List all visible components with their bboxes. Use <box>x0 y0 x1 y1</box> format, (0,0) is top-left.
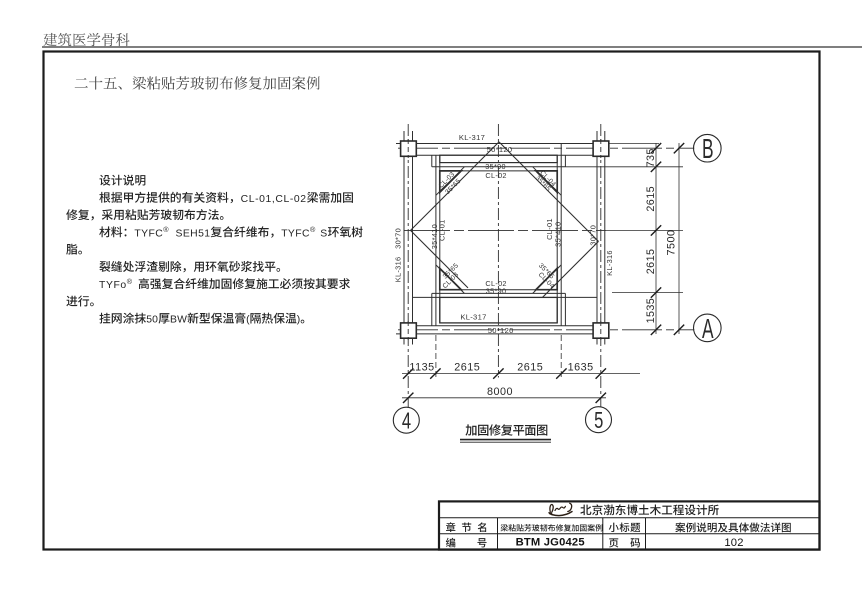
svg-text:CL-01: CL-01 <box>438 219 447 241</box>
svg-text:35*90: 35*90 <box>485 162 506 171</box>
svg-text:S: S <box>320 228 327 239</box>
svg-text:2615: 2615 <box>645 186 657 212</box>
svg-text:2615: 2615 <box>645 249 657 275</box>
svg-text:102: 102 <box>724 537 743 549</box>
svg-text:KL-317: KL-317 <box>460 312 486 321</box>
svg-text:CL-02: CL-02 <box>485 171 506 180</box>
svg-text:BW: BW <box>170 315 187 326</box>
svg-text:50*120: 50*120 <box>487 145 513 154</box>
svg-text:30*70: 30*70 <box>394 228 403 249</box>
svg-text:35*90: 35*90 <box>486 287 507 296</box>
svg-text:®: ® <box>310 225 316 234</box>
svg-text:A: A <box>702 313 714 344</box>
svg-text:1635: 1635 <box>568 362 594 374</box>
svg-text:®: ® <box>127 277 133 286</box>
svg-text:8000: 8000 <box>487 386 513 398</box>
svg-text:(: ( <box>246 315 250 326</box>
svg-text:®: ® <box>163 225 169 234</box>
svg-text:5: 5 <box>594 408 603 433</box>
svg-text:B: B <box>702 133 714 164</box>
svg-text:2615: 2615 <box>454 362 480 374</box>
svg-text:SEH51: SEH51 <box>176 228 211 239</box>
svg-text:CL-01,CL-02: CL-01,CL-02 <box>241 194 307 205</box>
svg-text:TYFC: TYFC <box>134 228 163 239</box>
svg-text:TYFo: TYFo <box>99 280 127 291</box>
svg-text:7500: 7500 <box>665 229 677 255</box>
svg-text:35*410: 35*410 <box>554 222 563 247</box>
svg-text:1135: 1135 <box>409 362 434 374</box>
svg-text:1535: 1535 <box>645 298 657 324</box>
svg-text:4: 4 <box>402 409 411 434</box>
svg-text:BTM JG0425: BTM JG0425 <box>516 537 585 549</box>
svg-text:KL-316: KL-316 <box>394 257 403 283</box>
svg-text:735: 735 <box>645 148 657 167</box>
svg-text:2615: 2615 <box>517 362 543 374</box>
svg-text:KL-316: KL-316 <box>605 250 614 276</box>
svg-text:50*120: 50*120 <box>488 326 514 335</box>
svg-text:): ) <box>297 315 300 326</box>
svg-text:30*70: 30*70 <box>588 225 597 246</box>
svg-text:50: 50 <box>146 315 158 326</box>
svg-text:TYFC: TYFC <box>281 228 310 239</box>
svg-text:KL-317: KL-317 <box>459 133 485 142</box>
